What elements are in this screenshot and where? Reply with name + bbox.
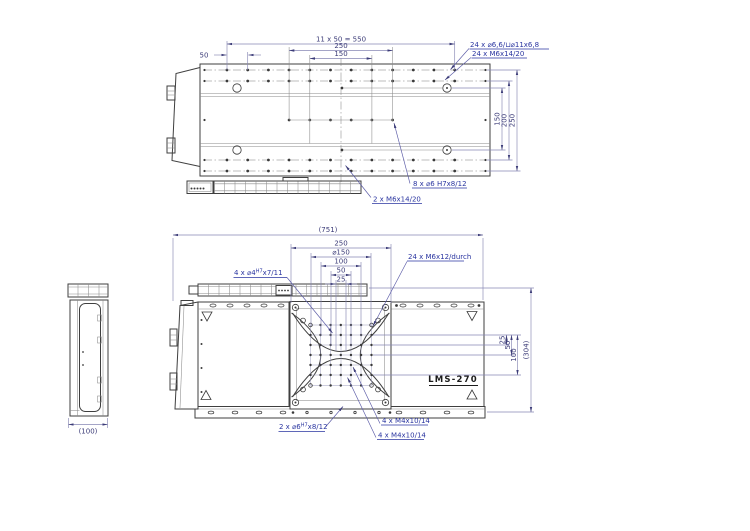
left-cover-plate bbox=[198, 302, 289, 407]
product-label: LMS-270 bbox=[428, 375, 478, 385]
dim-50-front: 50 bbox=[337, 267, 346, 275]
side-view-dimension: (100) bbox=[69, 418, 108, 436]
dim-100-width: (100) bbox=[79, 428, 98, 436]
top-view: 11 x 50 = 550 250 150 50 150 200 250 bbox=[167, 36, 549, 204]
dim-25-front: 25 bbox=[337, 276, 346, 284]
cable-chain-front-view bbox=[189, 284, 367, 296]
dim-right-250: 250 bbox=[509, 114, 517, 127]
dim-right-200: 200 bbox=[501, 114, 509, 127]
note-m6: 24 x M6x14/20 bbox=[472, 50, 524, 58]
cable-chain-side-view bbox=[68, 284, 108, 297]
note-dowel: 8 x ⌀6 H7x8/12 bbox=[413, 180, 467, 188]
cable-chain-top-view bbox=[187, 178, 361, 194]
note-m6-through: 24 x M6x12/durch bbox=[408, 253, 471, 261]
note-pin6: 2 x ⌀6H7x8/12 bbox=[279, 423, 328, 432]
note-counterbore: 24 x ⌀6,6/⊔⌀11x6,8 bbox=[470, 41, 539, 49]
dim-50: 50 bbox=[200, 52, 209, 60]
note-m6-chain: 2 x M6x14/20 bbox=[373, 196, 421, 204]
mounting-hole-grid bbox=[203, 69, 486, 173]
motor-housing bbox=[167, 68, 200, 167]
note-m4-top: 4 x M4x10/14 bbox=[382, 417, 430, 425]
dim-250-front: 250 bbox=[334, 240, 347, 248]
dim-250: 250 bbox=[334, 42, 347, 50]
note-m4-bottom: 4 x M4x10/14 bbox=[378, 432, 426, 440]
dim-100-front: 100 bbox=[334, 258, 347, 266]
front-view: (751) bbox=[170, 226, 534, 440]
dim-150-front: ⌀150 bbox=[332, 249, 350, 257]
front-connector-box bbox=[170, 301, 198, 410]
dim-right-50: 50 bbox=[504, 341, 512, 350]
top-view-annotations: 24 x ⌀6,6/⊔⌀11x6,8 24 x M6x14/20 8 x ⌀6 … bbox=[346, 41, 550, 204]
side-body bbox=[70, 300, 108, 416]
dim-304: (304) bbox=[523, 340, 531, 359]
right-cover-plate: LMS-270 bbox=[391, 302, 484, 407]
drawing-sheet: 11 x 50 = 550 250 150 50 150 200 250 bbox=[0, 0, 750, 531]
technical-drawing: 11 x 50 = 550 250 150 50 150 200 250 bbox=[0, 0, 750, 531]
note-pin4: 4 x ⌀4H7x7/11 bbox=[234, 269, 283, 278]
dim-right-100: 100 bbox=[510, 348, 518, 361]
dim-150: 150 bbox=[334, 50, 347, 58]
side-view: (100) bbox=[68, 284, 108, 436]
dim-751: (751) bbox=[319, 226, 338, 234]
